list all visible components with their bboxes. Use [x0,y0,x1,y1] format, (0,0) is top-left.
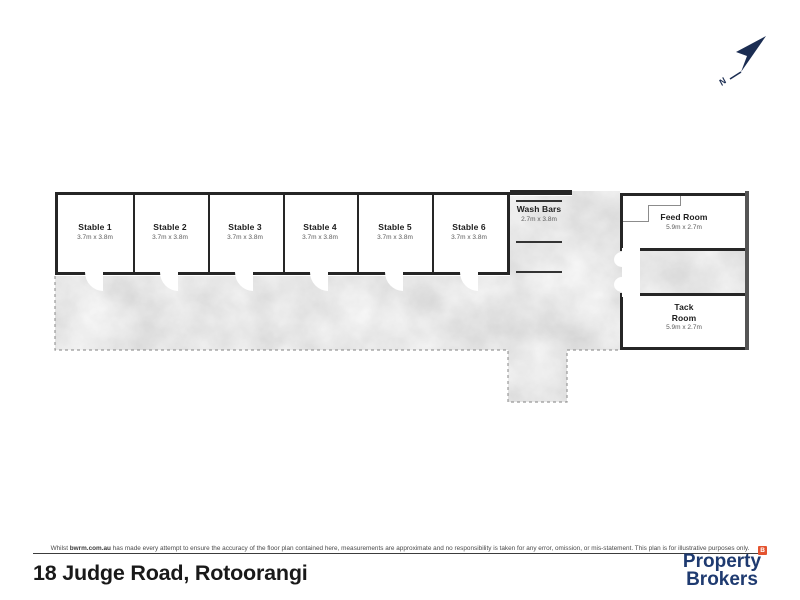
stable-5-label: Stable 5 3.7m x 3.8m [360,222,430,242]
room-name: Tack Room [662,302,706,323]
room-dims: 2.7m x 3.8m [513,216,565,224]
stable-3-label: Stable 3 3.7m x 3.8m [210,222,280,242]
right-outer-wall [745,191,749,350]
room-name: Stable 3 [210,222,280,233]
room-dims: 5.9m x 2.7m [662,324,706,332]
feed-room-label: Feed Room 5.9m x 2.7m [626,212,742,232]
room-dims: 3.7m x 3.8m [360,234,430,242]
wash-bars-rail [516,271,562,273]
logo-text-brokers: Brokers [674,571,770,588]
corridor-doorway [622,248,640,297]
property-brokers-logo: PropertyB Brokers [674,552,770,588]
disclaimer-prefix: Whilst [51,545,70,552]
footer-divider [33,553,767,554]
room-name: Stable 5 [360,222,430,233]
room-name: Stable 1 [60,222,130,233]
room-dims: 3.7m x 3.8m [60,234,130,242]
room-dims: 3.7m x 3.8m [285,234,355,242]
room-dims: 5.9m x 2.7m [626,224,742,232]
stable-divider-wall [357,195,359,272]
floor-plan-page: N Stable 1 3.7m x 3.8m Stable 2 3.7m x 3… [0,0,800,600]
disclaimer-rest: has made every attempt to ensure the acc… [111,545,749,552]
wash-bars-rail [516,200,562,202]
room-name: Wash Bars [513,204,565,215]
room-name: Stable 4 [285,222,355,233]
stable-1-label: Stable 1 3.7m x 3.8m [60,222,130,242]
room-name: Stable 2 [135,222,205,233]
wash-bars-label: Wash Bars 2.7m x 3.8m [513,204,565,224]
feed-room-step-detail [680,196,681,206]
room-dims: 3.7m x 3.8m [135,234,205,242]
room-dims: 3.7m x 3.8m [210,234,280,242]
north-arrow-icon: N [700,22,785,97]
room-name: Feed Room [626,212,742,223]
tack-room-label: Tack Room 5.9m x 2.7m [662,302,706,332]
stable-4-label: Stable 4 3.7m x 3.8m [285,222,355,242]
stable-2-label: Stable 2 3.7m x 3.8m [135,222,205,242]
logo-b-badge-icon: B [758,546,767,555]
wash-bars-rail [516,241,562,243]
wash-bars-top-wall [510,190,572,195]
disclaimer-brand: bwrm.com.au [70,545,111,552]
feed-room-step-detail [648,205,681,206]
room-name: Stable 6 [434,222,504,233]
logo-wordmark-line1: PropertyB [683,552,761,571]
stable-6-label: Stable 6 3.7m x 3.8m [434,222,504,242]
north-label: N [717,75,729,87]
property-address-title: 18 Judge Road, Rotoorangi [33,561,308,586]
logo-text-property: Property [683,551,761,572]
room-dims: 3.7m x 3.8m [434,234,504,242]
